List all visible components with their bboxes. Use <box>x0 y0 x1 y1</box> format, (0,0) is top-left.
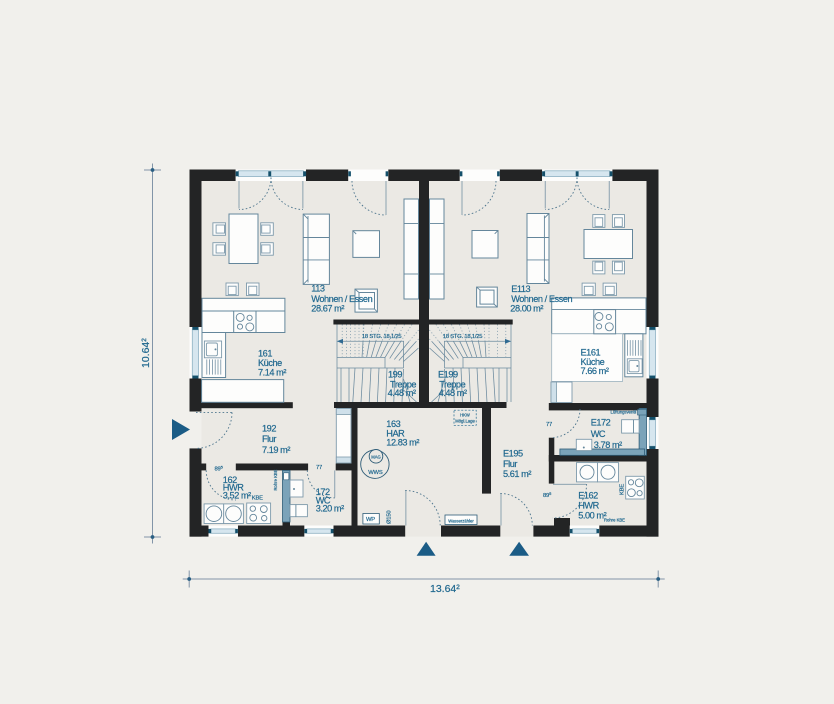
svg-text:7.19 m²: 7.19 m² <box>262 445 290 455</box>
svg-text:Wasserzähler: Wasserzähler <box>448 519 474 524</box>
svg-text:E195: E195 <box>503 449 523 459</box>
svg-text:Flur: Flur <box>262 434 276 444</box>
svg-text:3.52 m²: 3.52 m² <box>223 491 251 501</box>
svg-text:113: 113 <box>311 284 325 294</box>
svg-text:4.48 m²: 4.48 m² <box>388 388 416 398</box>
svg-text:E199: E199 <box>438 370 458 380</box>
svg-text:WC: WC <box>591 429 606 439</box>
svg-text:10.64²: 10.64² <box>140 338 152 368</box>
svg-text:199: 199 <box>388 370 402 380</box>
svg-text:Rohre KBE: Rohre KBE <box>273 469 278 490</box>
svg-text:Ø150: Ø150 <box>387 511 393 524</box>
svg-text:Küche: Küche <box>258 358 282 368</box>
svg-text:Wohnen / Essen: Wohnen / Essen <box>511 294 572 304</box>
svg-text:77: 77 <box>546 422 552 428</box>
svg-text:Mögl.Lage: Mögl.Lage <box>455 419 475 424</box>
svg-text:WWS: WWS <box>368 470 383 476</box>
svg-text:KBE: KBE <box>620 484 626 495</box>
svg-text:5.61 m²: 5.61 m² <box>503 469 531 479</box>
svg-text:E113: E113 <box>511 284 530 294</box>
svg-text:Wohnen / Essen: Wohnen / Essen <box>311 294 372 304</box>
svg-text:28.00 m²: 28.00 m² <box>510 304 543 314</box>
svg-text:7.14 m²: 7.14 m² <box>258 368 286 378</box>
svg-text:7.66 m²: 7.66 m² <box>581 366 609 376</box>
svg-text:E162: E162 <box>578 491 598 501</box>
svg-text:3.78 m²: 3.78 m² <box>594 440 622 450</box>
svg-text:Flur: Flur <box>503 459 517 469</box>
svg-text:161: 161 <box>258 349 272 359</box>
svg-text:18 STG. 18,1/25: 18 STG. 18,1/25 <box>362 334 402 340</box>
svg-text:WP: WP <box>366 517 375 523</box>
svg-text:HWR: HWR <box>578 501 599 511</box>
svg-text:3.20 m²: 3.20 m² <box>316 504 344 514</box>
svg-text:77: 77 <box>316 465 322 471</box>
svg-text:Lüftungsventil: Lüftungsventil <box>611 410 637 415</box>
svg-text:HKW: HKW <box>460 413 470 418</box>
svg-text:4.48 m²: 4.48 m² <box>439 388 467 398</box>
svg-text:28.67 m²: 28.67 m² <box>311 304 344 314</box>
svg-text:Rohre KBE: Rohre KBE <box>604 518 625 523</box>
svg-text:192: 192 <box>262 424 276 434</box>
svg-text:E172: E172 <box>591 418 611 428</box>
svg-text:MAG: MAG <box>371 455 381 460</box>
svg-text:18 STG. 18,1/25: 18 STG. 18,1/25 <box>443 334 483 340</box>
svg-text:KBE: KBE <box>252 496 263 502</box>
svg-text:12.83 m²: 12.83 m² <box>386 437 419 447</box>
svg-text:5.00 m²: 5.00 m² <box>578 511 606 521</box>
svg-text:13.64²: 13.64² <box>430 583 460 595</box>
